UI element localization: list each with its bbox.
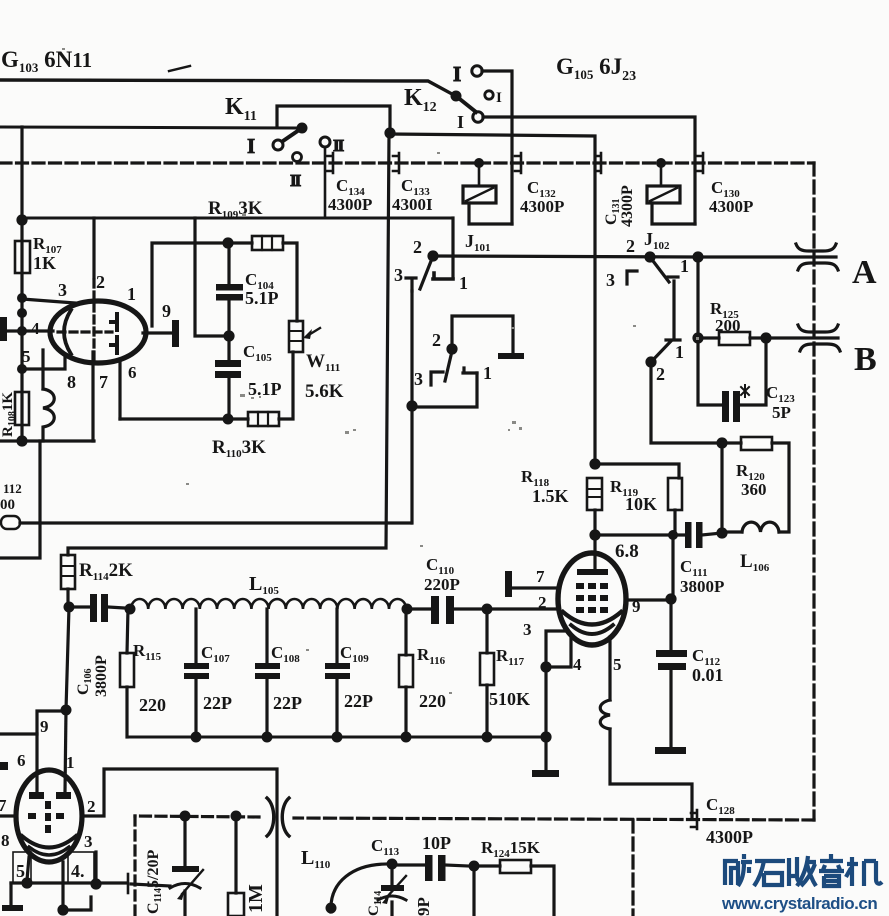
svg-text:4300P: 4300P bbox=[709, 197, 753, 216]
svg-text:4300P: 4300P bbox=[619, 185, 636, 227]
svg-text:3: 3 bbox=[58, 280, 67, 300]
svg-text:5: 5 bbox=[22, 347, 31, 366]
svg-text:4300P: 4300P bbox=[520, 197, 564, 216]
svg-text:2: 2 bbox=[432, 330, 441, 350]
svg-text:www.crystalradio.cn: www.crystalradio.cn bbox=[721, 894, 877, 913]
svg-text:1: 1 bbox=[459, 273, 468, 293]
svg-text:2: 2 bbox=[87, 797, 96, 816]
svg-text:0.01: 0.01 bbox=[692, 665, 724, 685]
svg-text:G103 6N11: G103 6N11 bbox=[1, 47, 92, 75]
svg-text:1: 1 bbox=[66, 753, 75, 772]
svg-text:2: 2 bbox=[626, 236, 635, 256]
svg-text:112: 112 bbox=[3, 481, 22, 496]
svg-text:1: 1 bbox=[127, 284, 136, 304]
svg-text:4: 4 bbox=[31, 319, 40, 338]
svg-text:9: 9 bbox=[162, 301, 171, 321]
svg-text:4: 4 bbox=[573, 655, 582, 674]
svg-text:I: I bbox=[457, 112, 464, 132]
svg-text:I: I bbox=[496, 90, 502, 106]
svg-text:10K: 10K bbox=[625, 494, 657, 514]
svg-text:3: 3 bbox=[414, 369, 423, 389]
svg-text:4.: 4. bbox=[71, 861, 85, 881]
svg-text:3: 3 bbox=[394, 265, 403, 285]
svg-text:5.1P: 5.1P bbox=[245, 288, 279, 308]
svg-text:1M: 1M bbox=[245, 884, 267, 913]
svg-text:220P: 220P bbox=[424, 575, 460, 594]
svg-text:2: 2 bbox=[656, 364, 665, 384]
svg-text:8: 8 bbox=[1, 831, 10, 850]
svg-text:22P: 22P bbox=[203, 693, 232, 713]
svg-text:R12415K: R12415K bbox=[481, 838, 541, 860]
svg-text:3800P: 3800P bbox=[93, 655, 110, 697]
svg-text:1K: 1K bbox=[33, 253, 56, 273]
svg-text:22P: 22P bbox=[344, 691, 373, 711]
svg-text:C1145/20P: C1145/20P bbox=[145, 850, 164, 914]
svg-text:1: 1 bbox=[680, 256, 689, 276]
svg-text:1: 1 bbox=[483, 363, 492, 383]
svg-text:10P: 10P bbox=[422, 833, 451, 853]
svg-text:3: 3 bbox=[84, 832, 93, 851]
svg-text:8: 8 bbox=[67, 372, 76, 392]
svg-text:4300P: 4300P bbox=[328, 195, 372, 214]
svg-text:00: 00 bbox=[0, 497, 15, 513]
svg-text:6: 6 bbox=[17, 751, 26, 770]
svg-text:5: 5 bbox=[16, 861, 25, 881]
svg-text:510K: 510K bbox=[489, 689, 530, 709]
svg-text:7: 7 bbox=[0, 796, 7, 815]
svg-text:7: 7 bbox=[536, 567, 545, 586]
svg-text:9: 9 bbox=[40, 717, 49, 736]
svg-text:5P: 5P bbox=[772, 403, 791, 422]
svg-text:220: 220 bbox=[139, 695, 166, 715]
svg-text:3: 3 bbox=[606, 270, 615, 290]
svg-text:6.8: 6.8 bbox=[615, 541, 639, 562]
svg-text:1: 1 bbox=[675, 342, 684, 362]
svg-text:3: 3 bbox=[523, 620, 532, 639]
svg-text:200: 200 bbox=[715, 316, 741, 335]
svg-text:I: I bbox=[247, 134, 255, 158]
svg-text:9: 9 bbox=[632, 597, 641, 616]
svg-text:4300P: 4300P bbox=[706, 827, 753, 847]
svg-text:9P: 9P bbox=[414, 897, 433, 916]
svg-text:5.1P: 5.1P bbox=[248, 379, 282, 399]
svg-text:5.6K: 5.6K bbox=[305, 381, 344, 402]
svg-text:B: B bbox=[854, 341, 877, 378]
svg-text:220: 220 bbox=[419, 691, 446, 711]
svg-text:3800P: 3800P bbox=[680, 577, 724, 596]
svg-text:A: A bbox=[852, 254, 877, 291]
svg-text:5: 5 bbox=[613, 655, 622, 674]
svg-text:7: 7 bbox=[99, 372, 108, 392]
svg-text:6: 6 bbox=[128, 363, 137, 382]
svg-text:360: 360 bbox=[741, 480, 767, 499]
svg-text:I: I bbox=[453, 62, 461, 86]
svg-text:22P: 22P bbox=[273, 693, 302, 713]
svg-text:1.5K: 1.5K bbox=[532, 486, 569, 506]
svg-text:4300I: 4300I bbox=[392, 195, 433, 214]
svg-text:2: 2 bbox=[96, 272, 105, 292]
svg-text:2: 2 bbox=[413, 237, 422, 257]
